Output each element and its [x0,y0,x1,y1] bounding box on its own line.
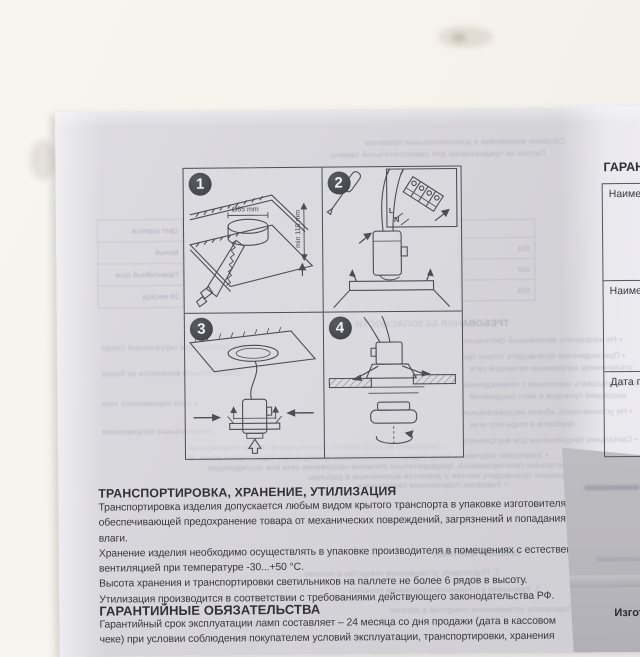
warranty-card-row-label: Дата про [610,376,640,388]
warranty-card-title: ГАРАН [603,160,640,174]
blurred-text-bar [584,485,639,490]
diagram-step-4: 4 [323,311,463,457]
warranty-card-row: Наимен [603,183,640,281]
svg-text:Ø85 mm: Ø85 mm [232,206,259,213]
diagram-step-1: 1 [184,168,324,314]
showthrough-line: в сети переменного тока [102,399,198,409]
photo-smudge [30,140,56,180]
warranty-section-text: Гарантийный срок эксплуатации ламп соста… [99,613,585,648]
manufacturer-label: Изгот [614,607,640,619]
showthrough-line: Согласно маркировке и дополнительным пра… [195,137,565,149]
warranty-card-row-label: Наимен [609,188,640,200]
step-number-badge: 2 [327,171,350,194]
warranty-card-row: Наимен [603,280,640,372]
showthrough-line: • Не направлять включенный светильник [462,335,622,345]
diagram-step-2: 2 [322,166,462,312]
blurred-text-bar [597,557,640,562]
showthrough-table-left: Цвет корпуса Белый Гарантийный срок 24 м… [97,219,184,309]
showthrough-line: приборов и открытого огня [470,419,575,429]
svg-text:L: L [388,206,393,215]
step-number-badge: 3 [190,318,213,341]
instruction-sheet: Согласно маркировке и дополнительным пра… [55,107,640,657]
text-line: чеке) при условии соблюдения покупателем… [100,629,586,649]
step-number-badge: 4 [328,316,351,339]
showthrough-line: • Присоединение производить только при [462,351,625,361]
showthrough-line: Патрон не предназначен для самостоятельн… [215,149,545,161]
diagram-step-3: 3 [185,313,325,459]
warranty-card-table: Наимен Наимен Дата про [602,182,640,457]
showthrough-table-codes: 001 002 003 [459,219,536,302]
svg-text:N: N [393,215,399,224]
warranty-card-row: Дата про [604,371,640,455]
warranty-card-row-label: Наимен [610,285,640,297]
step-number-badge: 1 [189,173,212,196]
transport-section-text: Транспортировка изделия допускается любы… [98,496,585,607]
installation-diagram-grid: 1 [182,165,464,459]
svg-text:min 110 mm: min 110 mm [295,210,302,248]
photo-smudge [452,33,466,42]
